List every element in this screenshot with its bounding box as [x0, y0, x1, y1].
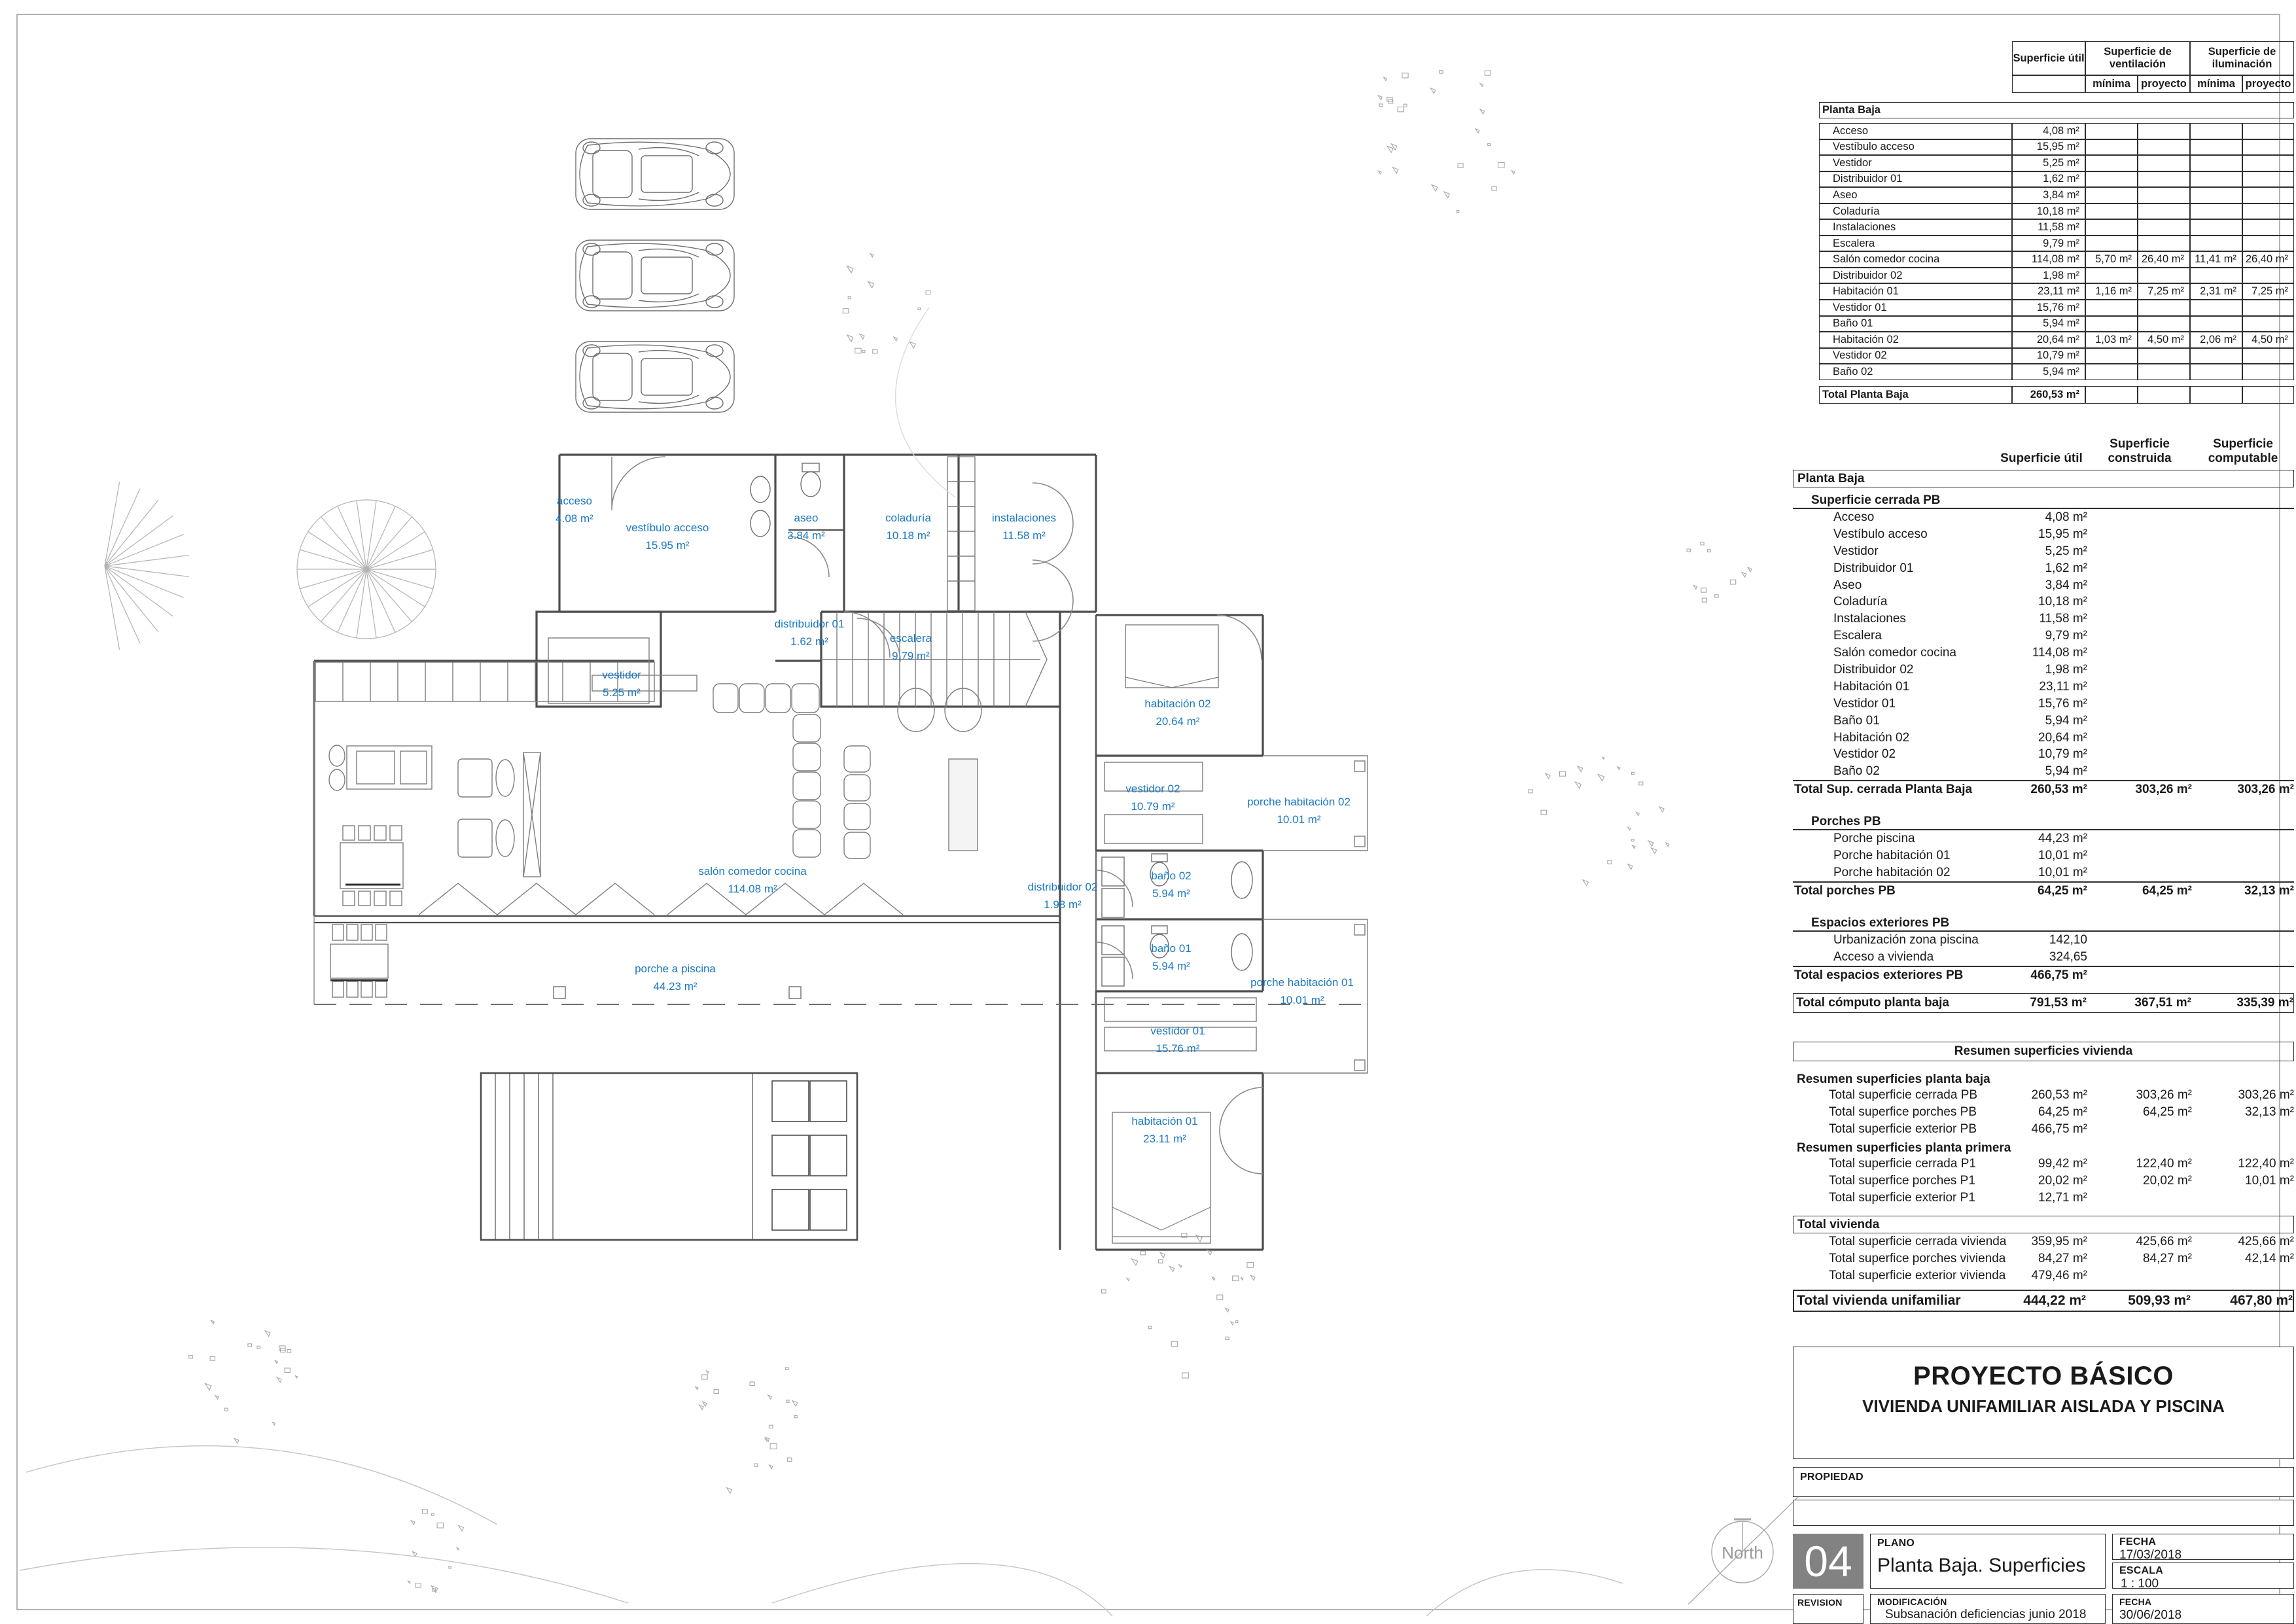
row-value: 10,79 m²: [2009, 747, 2087, 762]
row-value: [2138, 139, 2190, 156]
room-name: habitación 01: [1131, 1112, 1197, 1130]
row-value: 10,01 m²: [2192, 1174, 2294, 1188]
row-label: Baño 01: [1793, 714, 2009, 728]
row-value: [2242, 364, 2294, 380]
row-value: [2190, 300, 2242, 316]
row-value: 142,10: [2009, 933, 2087, 947]
table-row: Vestidor5,25 m²: [1819, 155, 2294, 171]
room-area: 5.94 m²: [1151, 885, 1191, 902]
table-row: Total Planta Baja260,53 m²: [1819, 386, 2294, 404]
spacer: [1793, 900, 2294, 914]
table-row: Total superfice porches P120,02 m²20,02 …: [1793, 1173, 2294, 1190]
sheet-number-box: 04: [1793, 1534, 1863, 1589]
table-row: Total superfice porches vivienda84,27 m²…: [1793, 1250, 2294, 1267]
row-label: Distribuidor 02: [1819, 268, 2012, 284]
table-header: Superficie útilSuperficie construidaSupe…: [1793, 429, 2294, 466]
row-util: 3,84 m²: [2012, 187, 2085, 203]
row-value: [2242, 123, 2294, 139]
table-row: Baño 015,94 m²: [1793, 713, 2294, 730]
fecha-label: FECHA: [2119, 1536, 2293, 1548]
row-util: 10,79 m²: [2012, 348, 2085, 364]
row-value: [2085, 171, 2138, 188]
row-value: 11,58 m²: [2009, 612, 2087, 626]
row-util: 23,11 m²: [2012, 283, 2085, 300]
table-row: Total superficie exterior vivienda479,46…: [1793, 1267, 2294, 1284]
table-row: Habitación 0220,64 m²: [1793, 730, 2294, 747]
row-value: 5,94 m²: [2009, 764, 2087, 779]
room-area: 23.11 m²: [1131, 1130, 1197, 1148]
room-area: 114.08 m²: [698, 880, 806, 898]
table-row: Acceso4,08 m²: [1819, 123, 2294, 139]
table-row: Salón comedor cocina114,08 m²: [1793, 644, 2294, 662]
row-value: 367,51 m²: [2087, 996, 2191, 1010]
room-area: 4.08 m²: [556, 510, 593, 527]
room-area: 44.23 m²: [635, 978, 716, 995]
row-label: Aseo: [1819, 187, 2012, 203]
table-row: Vestidor 0210,79 m²: [1793, 746, 2294, 763]
row-value: [2242, 155, 2294, 171]
row-value: 64,25 m²: [2009, 1105, 2087, 1120]
row-label: Porche piscina: [1793, 832, 2009, 846]
row-value: 260,53 m²: [2009, 783, 2087, 797]
row-value: [2085, 187, 2138, 203]
row-value: 4,08 m²: [2009, 510, 2087, 525]
row-value: [2190, 316, 2242, 332]
room-name: baño 01: [1151, 940, 1191, 957]
table-row: Escalera9,79 m²: [1793, 627, 2294, 644]
room-name: coladuría: [885, 509, 931, 527]
fecha-value: 17/03/2018: [2119, 1548, 2293, 1562]
north-arrow-label: North: [1722, 1543, 1763, 1562]
total-empty: [2085, 386, 2138, 404]
row-util: 5,25 m²: [2012, 155, 2085, 171]
row-value: 791,53 m²: [2008, 996, 2087, 1010]
table-row: Porche habitación 0110,01 m²: [1793, 847, 2294, 864]
row-value: 466,75 m²: [2009, 968, 2087, 983]
row-value: [2085, 316, 2138, 332]
row-label: Escalera: [1819, 236, 2012, 252]
row-value: [2190, 171, 2242, 188]
row-value: 12,71 m²: [2009, 1191, 2087, 1205]
row-value: 26,40 m²: [2138, 251, 2190, 268]
total-empty: [2242, 386, 2294, 404]
row-label: Vestidor 02: [1793, 747, 2009, 762]
row-value: 15,95 m²: [2009, 527, 2087, 542]
row-label: Total superfice porches P1: [1793, 1174, 2009, 1188]
row-util: 15,95 m²: [2012, 139, 2085, 156]
sheet-number: 04: [1804, 1536, 1852, 1586]
row-label: Porche habitación 01: [1793, 849, 2009, 863]
row-value: [2138, 348, 2190, 364]
table-resumen-vivienda: Resumen superficies viviendaResumen supe…: [1793, 1042, 2294, 1312]
table-row: Aseo3,84 m²: [1793, 577, 2294, 594]
table-row: Salón comedor cocina114,08 m²5,70 m²26,4…: [1819, 251, 2294, 268]
row-label: Habitación 01: [1819, 283, 2012, 300]
row-value: 425,66 m²: [2192, 1235, 2294, 1249]
row-value: [2190, 268, 2242, 284]
row-value: 359,95 m²: [2009, 1235, 2087, 1249]
row-label: Baño 02: [1793, 764, 2009, 779]
row-value: 4,50 m²: [2138, 332, 2190, 348]
row-value: 479,46 m²: [2009, 1269, 2087, 1283]
table-row: Instalaciones11,58 m²: [1819, 219, 2294, 236]
group-header: Resumen superficies planta baja: [1793, 1069, 2294, 1087]
row-label: Total porches PB: [1793, 884, 2009, 898]
room-label-vestidor-01: vestidor 0115.76 m²: [1150, 1022, 1205, 1057]
room-area: 10.01 m²: [1250, 991, 1354, 1009]
row-label: Coladuría: [1793, 595, 2009, 609]
row-value: [2190, 203, 2242, 220]
row-value: [2085, 268, 2138, 284]
room-label-vestíbulo-acceso: vestíbulo acceso15.95 m²: [626, 519, 709, 554]
row-value: 5,94 m²: [2009, 714, 2087, 728]
row-value: [2138, 219, 2190, 236]
room-name: escalera: [890, 629, 932, 647]
row-value: 1,98 m²: [2009, 663, 2087, 677]
table-row: Acceso a vivienda324,65: [1793, 949, 2294, 966]
room-name: acceso: [556, 492, 593, 510]
row-value: 64,25 m²: [2009, 884, 2087, 898]
row-value: 20,02 m²: [2009, 1174, 2087, 1188]
row-value: [2085, 236, 2138, 252]
row-value: 303,26 m²: [2192, 1088, 2294, 1103]
row-value: 7,25 m²: [2138, 283, 2190, 300]
room-label-salón-comedor-cocina: salón comedor cocina114.08 m²: [698, 862, 806, 898]
room-label-escalera: escalera9.79 m²: [890, 629, 932, 665]
terrain-contours: [20, 308, 1623, 1616]
row-util: 1,62 m²: [2012, 171, 2085, 188]
room-label-vestidor-02: vestidor 0210.79 m²: [1125, 780, 1180, 815]
row-label: Vestíbulo acceso: [1819, 139, 2012, 156]
room-label-distribuidor-01: distribuidor 011.62 m²: [775, 615, 845, 650]
row-value: [2242, 236, 2294, 252]
row-value: [2242, 219, 2294, 236]
row-label: Urbanización zona piscina: [1793, 933, 2009, 947]
row-value: [2085, 155, 2138, 171]
table-row: Vestidor 0115,76 m²: [1819, 300, 2294, 316]
row-label: Coladuría: [1819, 203, 2012, 220]
room-name: distribuidor 02: [1028, 878, 1098, 896]
modificacion-box: MODIFICACIÓN Subsanación deficiencias ju…: [1870, 1594, 2106, 1624]
table-row: Porche habitación 0210,01 m²: [1793, 864, 2294, 881]
table-row: Total Sup. cerrada Planta Baja260,53 m²3…: [1793, 780, 2294, 798]
row-value: [2138, 155, 2190, 171]
col-header: Superficie útil: [1996, 451, 2087, 466]
table-row: Total superficie cerrada vivienda359,95 …: [1793, 1233, 2294, 1250]
row-label: Total superficie cerrada P1: [1793, 1157, 2009, 1171]
spacer: [1793, 1207, 2294, 1216]
row-value: 64,25 m²: [2087, 884, 2192, 898]
room-label-coladuría: coladuría10.18 m²: [885, 509, 931, 544]
room-area: 5.25 m²: [602, 684, 641, 701]
table-row: Total cómputo planta baja791,53 m²367,51…: [1793, 993, 2294, 1013]
table-row: Habitación 0220,64 m²1,03 m²4,50 m²2,06 …: [1819, 332, 2294, 348]
project-title-box: PROYECTO BÁSICO VIVIENDA UNIFAMILIAR AIS…: [1793, 1347, 2294, 1459]
row-label: Distribuidor 01: [1819, 171, 2012, 188]
row-value: [2190, 187, 2242, 203]
row-value: 3,84 m²: [2009, 578, 2087, 593]
table-row: Superficie útilSuperficie de ventilación…: [1819, 41, 2294, 75]
row-value: 15,76 m²: [2009, 697, 2087, 711]
row-util: 20,64 m²: [2012, 332, 2085, 348]
row-value: 20,64 m²: [2009, 731, 2087, 745]
row-value: 32,13 m²: [2192, 884, 2294, 898]
row-value: 466,75 m²: [2009, 1122, 2087, 1137]
row-value: [2242, 187, 2294, 203]
table-row: Porche piscina44,23 m²: [1793, 830, 2294, 847]
row-value: [2190, 364, 2242, 380]
row-label: Porche habitación 02: [1793, 866, 2009, 880]
row-label: Vestidor 01: [1819, 300, 2012, 316]
room-area: 11.58 m²: [992, 527, 1056, 544]
table-row: Habitación 0123,11 m²1,16 m²7,25 m²2,31 …: [1819, 283, 2294, 300]
row-value: [2138, 123, 2190, 139]
row-util: 5,94 m²: [2012, 316, 2085, 332]
total-vivienda-header: Total vivienda: [1793, 1216, 2294, 1233]
row-value: 122,40 m²: [2087, 1157, 2192, 1171]
fecha2-value: 30/06/2018: [2119, 1608, 2293, 1623]
room-area: 3.84 m²: [787, 527, 825, 544]
row-label: Habitación 01: [1793, 680, 2009, 694]
row-value: 84,27 m²: [2087, 1252, 2192, 1266]
table-row: Total superficie exterior P112,71 m²: [1793, 1190, 2294, 1207]
room-label-porche-habitación-01: porche habitación 0110.01 m²: [1250, 974, 1354, 1009]
row-value: 5,70 m²: [2085, 251, 2138, 268]
tree-fan-icon: [105, 482, 436, 650]
row-label: Salón comedor cocina: [1793, 646, 2009, 660]
row-value: [2190, 155, 2242, 171]
sub-header: mínima: [2190, 75, 2242, 93]
room-name: porche a piscina: [635, 960, 716, 978]
fecha2-box: FECHA 30/06/2018: [2112, 1594, 2294, 1624]
room-name: vestidor 02: [1125, 780, 1180, 798]
row-value: 425,66 m²: [2087, 1235, 2192, 1249]
row-label: Salón comedor cocina: [1819, 251, 2012, 268]
row-value: 23,11 m²: [2009, 680, 2087, 694]
modificacion-value: Subsanación deficiencias junio 2018: [1885, 1608, 2105, 1622]
drawing-sheet: North acceso4.08 m²vestíbulo acceso15.95…: [0, 0, 2296, 1624]
row-value: 122,40 m²: [2192, 1157, 2294, 1171]
spacer: [1819, 118, 2294, 123]
table-row: Baño 025,94 m²: [1819, 364, 2294, 380]
pool: [481, 1073, 857, 1240]
room-area: 1.98 m²: [1028, 896, 1098, 913]
row-value: 44,23 m²: [2009, 832, 2087, 846]
row-util: 15,76 m²: [2012, 300, 2085, 316]
row-util: 4,08 m²: [2012, 123, 2085, 139]
row-value: 1,62 m²: [2009, 561, 2087, 576]
total-label: Total Planta Baja: [1819, 386, 2012, 404]
fecha-box: FECHA 17/03/2018: [2112, 1534, 2294, 1560]
group-header: Resumen superficies planta primera: [1793, 1138, 2294, 1156]
row-label: Total superfice porches PB: [1793, 1105, 2009, 1120]
room-area: 10.18 m²: [885, 527, 931, 544]
row-label: Total espacios exteriores PB: [1793, 968, 2009, 983]
row-value: 467,80 m²: [2191, 1293, 2293, 1309]
row-value: 10,01 m²: [2009, 849, 2087, 863]
total-empty: [2138, 386, 2190, 404]
group-header: Espacios exteriores PB: [1793, 914, 2294, 932]
revision-box: REVISION: [1793, 1594, 1863, 1624]
table-superficies-pb: Superficie útilSuperficie construidaSupe…: [1793, 429, 2294, 1013]
car-icon: [576, 240, 734, 311]
row-value: 10,18 m²: [2009, 595, 2087, 609]
row-value: [2190, 139, 2242, 156]
row-label: Total superficie exterior P1: [1793, 1191, 2009, 1205]
car-icon: [576, 139, 734, 209]
row-label: Vestíbulo acceso: [1793, 527, 2009, 542]
spacer: [1819, 380, 2294, 386]
furniture-group: [329, 625, 1218, 1243]
table-row: Baño 015,94 m²: [1819, 316, 2294, 332]
row-value: 64,25 m²: [2087, 1105, 2192, 1120]
spacer: [1793, 984, 2294, 993]
row-value: 5,25 m²: [2009, 544, 2087, 559]
table-row: Coladuría10,18 m²: [1793, 593, 2294, 610]
row-value: [2138, 171, 2190, 188]
row-label: Vestidor: [1793, 544, 2009, 559]
propiedad-label: PROPIEDAD: [1800, 1472, 2293, 1483]
sub-header: mínima: [2085, 75, 2138, 93]
row-label: Baño 02: [1819, 364, 2012, 380]
plano-box: PLANO Planta Baja. Superficies: [1870, 1534, 2106, 1589]
spacer: [1793, 798, 2294, 813]
row-value: 2,06 m²: [2190, 332, 2242, 348]
room-area: 15.76 m²: [1150, 1040, 1205, 1057]
sub-header: proyecto: [2242, 75, 2294, 93]
row-value: [2242, 316, 2294, 332]
room-name: porche habitación 02: [1247, 793, 1351, 811]
row-value: [2190, 219, 2242, 236]
table-row: Total vivienda unifamiliar444,22 m²509,9…: [1793, 1290, 2294, 1312]
row-value: [2242, 203, 2294, 220]
room-name: instalaciones: [992, 509, 1056, 527]
row-label: Instalaciones: [1819, 219, 2012, 236]
row-value: [2138, 364, 2190, 380]
row-value: 84,27 m²: [2009, 1252, 2087, 1266]
row-value: [2242, 300, 2294, 316]
table-row: mínimaproyectomínimaproyecto: [1819, 75, 2294, 93]
row-value: [2085, 364, 2138, 380]
row-value: 335,39 m²: [2191, 996, 2293, 1010]
table-cell: [1819, 75, 2012, 93]
row-util: 114,08 m²: [2012, 251, 2085, 268]
room-label-aseo: aseo3.84 m²: [787, 509, 825, 544]
escala-box: ESCALA 1 : 100: [2112, 1562, 2294, 1589]
row-label: Distribuidor 01: [1793, 561, 2009, 576]
row-value: 303,26 m²: [2087, 783, 2192, 797]
room-label-instalaciones: instalaciones11.58 m²: [992, 509, 1056, 544]
escala-label: ESCALA: [2119, 1565, 2293, 1577]
room-area: 5.94 m²: [1151, 957, 1191, 975]
table-row: Vestidor 0210,79 m²: [1819, 348, 2294, 364]
row-value: [2138, 268, 2190, 284]
row-util: 9,79 m²: [2012, 236, 2085, 252]
room-area: 10.79 m²: [1125, 798, 1180, 815]
spacer: [1793, 1061, 2294, 1069]
plano-value: Planta Baja. Superficies: [1877, 1555, 2105, 1577]
escala-value: 1 : 100: [2121, 1577, 2293, 1591]
sun-loungers: [772, 1081, 847, 1230]
col-header-superficie-util: Superficie útil: [2012, 41, 2085, 75]
row-value: 32,13 m²: [2192, 1105, 2294, 1120]
room-label-baño-01: baño 015.94 m²: [1151, 940, 1191, 975]
car-icon: [576, 342, 734, 412]
revision-label: REVISION: [1797, 1597, 1863, 1608]
table-superficie-ventilacion: Superficie útilSuperficie de ventilación…: [1819, 41, 2294, 404]
walls-group: [314, 455, 1263, 1250]
row-value: [2190, 123, 2242, 139]
room-label-vestidor: vestidor5.25 m²: [602, 666, 641, 701]
row-label: Total cómputo planta baja: [1793, 996, 2008, 1010]
row-label: Vestidor 01: [1793, 697, 2009, 711]
room-area: 1.62 m²: [775, 633, 845, 650]
table-row: Total porches PB64,25 m²64,25 m²32,13 m²: [1793, 881, 2294, 900]
doors-group: [612, 457, 1263, 1174]
table-row: Instalaciones11,58 m²: [1793, 610, 2294, 627]
table-row: Distribuidor 011,62 m²: [1819, 171, 2294, 188]
table-cell: [1819, 41, 2012, 75]
spacer: [1819, 93, 2294, 102]
row-util: 11,58 m²: [2012, 219, 2085, 236]
row-value: 114,08 m²: [2009, 646, 2087, 660]
group-header: Porches PB: [1793, 813, 2294, 830]
row-label: Habitación 02: [1819, 332, 2012, 348]
total-empty: [2190, 386, 2242, 404]
row-util: 10,18 m²: [2012, 203, 2085, 220]
row-value: [2242, 348, 2294, 364]
row-value: 4,50 m²: [2242, 332, 2294, 348]
room-area: 15.95 m²: [626, 537, 709, 554]
table-cell: [2012, 75, 2085, 93]
row-label: Total Sup. cerrada Planta Baja: [1793, 783, 2009, 797]
resumen-title: Resumen superficies vivienda: [1793, 1042, 2294, 1061]
row-value: 20,02 m²: [2087, 1174, 2192, 1188]
row-value: [2138, 187, 2190, 203]
row-value: [2085, 300, 2138, 316]
table-row: Escalera9,79 m²: [1819, 236, 2294, 252]
table-row: Acceso4,08 m²: [1793, 509, 2294, 526]
row-value: 303,26 m²: [2192, 783, 2294, 797]
row-label: Vestidor 02: [1819, 348, 2012, 364]
row-label: Distribuidor 02: [1793, 663, 2009, 677]
porch-lines: [315, 457, 1368, 1073]
row-label: Total superficie exterior vivienda: [1793, 1269, 2009, 1283]
row-label: Acceso: [1793, 510, 2009, 525]
row-value: [2085, 203, 2138, 220]
room-name: salón comedor cocina: [698, 862, 806, 880]
row-value: 303,26 m²: [2087, 1088, 2192, 1103]
row-value: [2085, 139, 2138, 156]
table-row: Total superficie cerrada P199,42 m²122,4…: [1793, 1156, 2294, 1173]
row-value: [2190, 348, 2242, 364]
table-row: Planta Baja: [1819, 102, 2294, 118]
sub-header: proyecto: [2138, 75, 2190, 93]
row-value: [2085, 123, 2138, 139]
table-row: Vestidor5,25 m²: [1793, 543, 2294, 560]
row-value: 9,79 m²: [2009, 629, 2087, 643]
row-value: [2085, 219, 2138, 236]
room-label-acceso: acceso4.08 m²: [556, 492, 593, 527]
row-util: 1,98 m²: [2012, 268, 2085, 284]
row-value: [2138, 316, 2190, 332]
room-area: 20.64 m²: [1144, 713, 1210, 730]
row-label: Acceso: [1819, 123, 2012, 139]
row-value: [2138, 236, 2190, 252]
room-label-habitación-02: habitación 0220.64 m²: [1144, 695, 1210, 730]
row-label: Acceso a vivienda: [1793, 950, 2009, 964]
row-value: [2138, 203, 2190, 220]
